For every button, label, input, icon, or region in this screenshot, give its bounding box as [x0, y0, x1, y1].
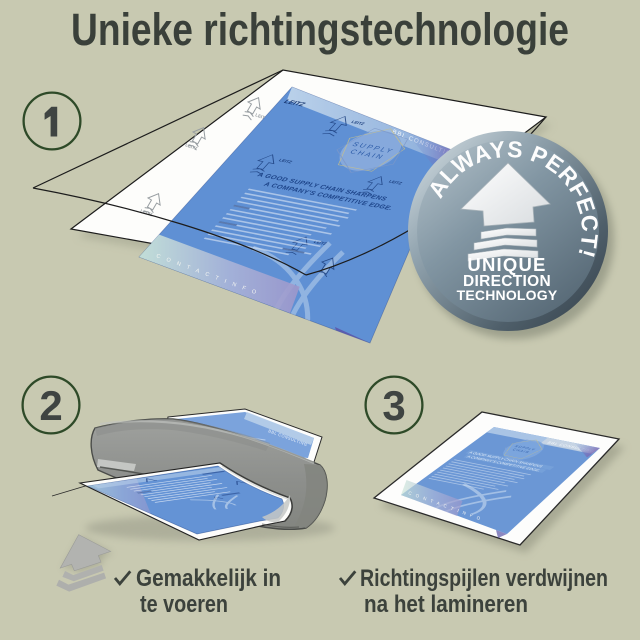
svg-text:Richtingspijlen verdwijnen: Richtingspijlen verdwijnen [360, 565, 608, 592]
svg-text:Unieke richtingstechnologie: Unieke richtingstechnologie [71, 4, 569, 55]
svg-text:UNIQUE: UNIQUE [467, 254, 546, 275]
svg-text:TECHNOLOGY: TECHNOLOGY [457, 287, 558, 303]
svg-text:te voeren: te voeren [140, 591, 228, 618]
svg-text:2: 2 [39, 382, 62, 429]
svg-text:Gemakkelijk in: Gemakkelijk in [136, 565, 281, 592]
svg-text:3: 3 [382, 382, 405, 429]
svg-text:na het lamineren: na het lamineren [364, 591, 528, 618]
